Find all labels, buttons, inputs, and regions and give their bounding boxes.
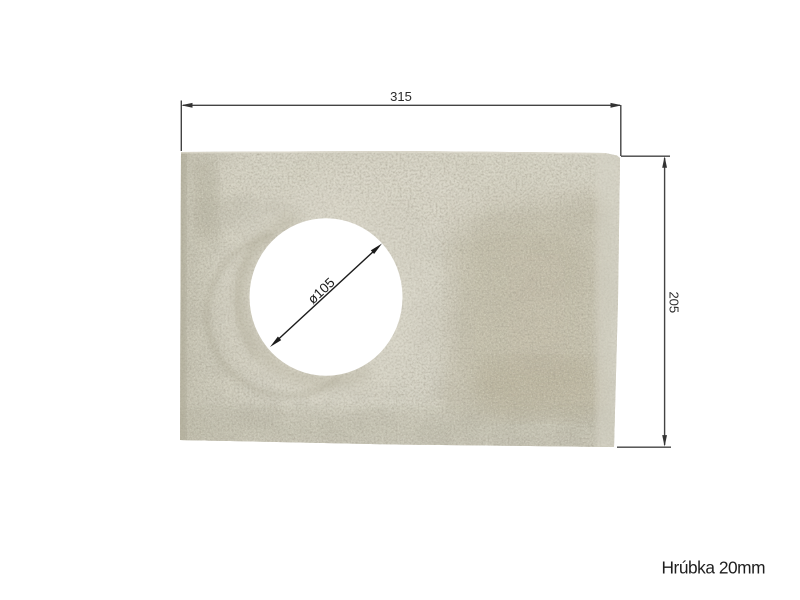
svg-text:205: 205 — [666, 291, 681, 313]
svg-text:315: 315 — [390, 89, 412, 104]
svg-text:Hrúbka 20mm: Hrúbka 20mm — [662, 557, 766, 577]
